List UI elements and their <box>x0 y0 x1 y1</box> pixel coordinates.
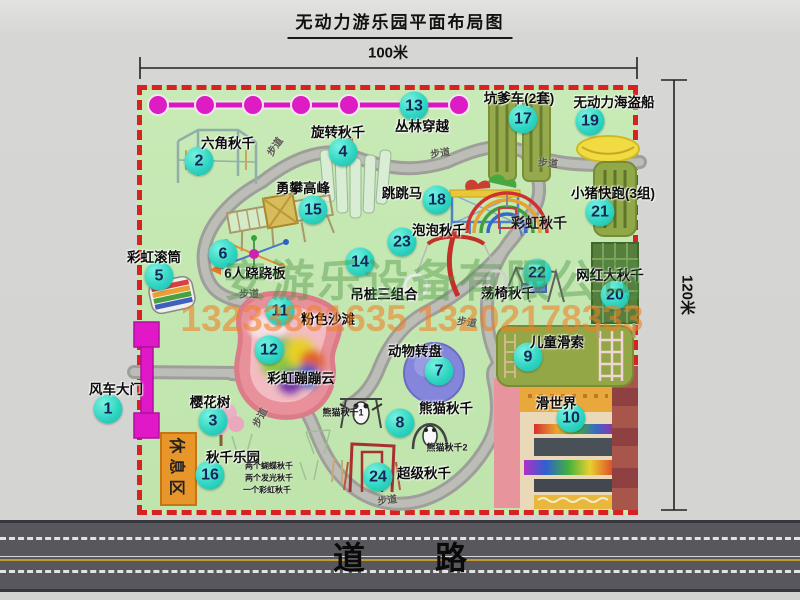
park-layout-poster: 无动力游乐园平面布局图 <box>0 0 800 600</box>
road-label: 道路 <box>263 533 537 579</box>
rest-area-label: 休息区 <box>167 437 191 500</box>
height-dimension-label: 120米 <box>678 275 699 315</box>
watermark-phone: 13233801635 13202178333 <box>181 298 644 340</box>
width-dimension-label: 100米 <box>368 42 408 63</box>
attraction-1-label: 风车大门 <box>89 378 143 398</box>
page-title: 无动力游乐园平面布局图 <box>288 8 513 39</box>
attraction-1-marker: 1 <box>94 395 123 424</box>
road: 道路 <box>0 520 800 592</box>
rest-area: 休息区 <box>160 432 197 506</box>
